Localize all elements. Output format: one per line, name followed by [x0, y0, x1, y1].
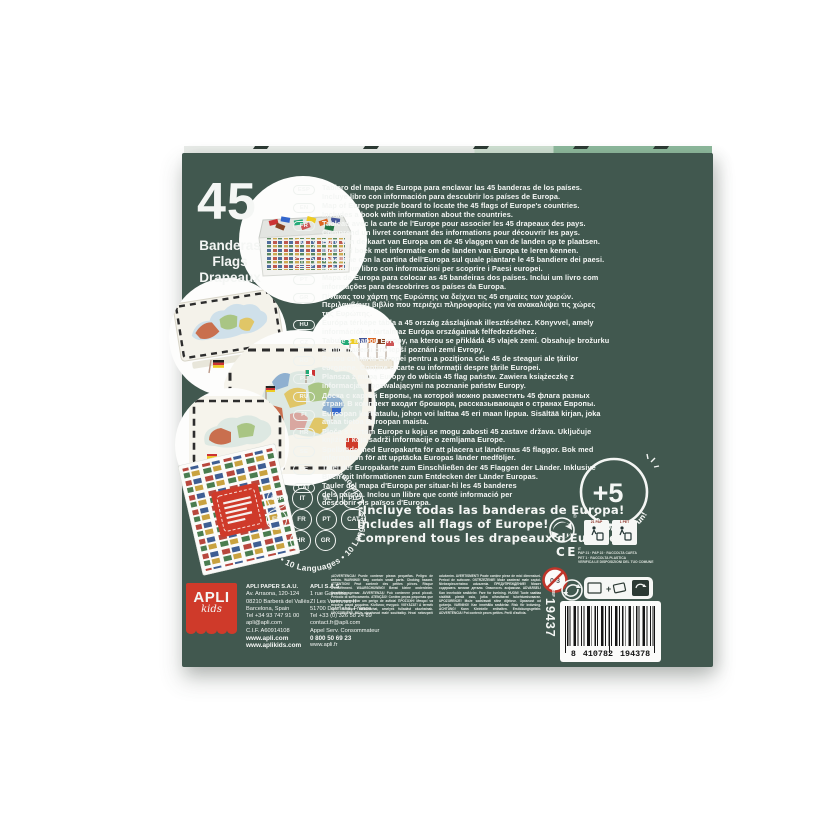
- green-dot-icon: [548, 516, 576, 544]
- description-line: стран. В комплект входит брошюра, расска…: [322, 400, 709, 409]
- sparkle-icon: [647, 454, 659, 467]
- description-row: ITTabellone con la cartina dell'Europa s…: [291, 256, 709, 273]
- recycle-label-paper: 21 PAP: [584, 520, 609, 545]
- count-label-en: Flags: [184, 254, 276, 270]
- svg-text:+: +: [606, 584, 611, 594]
- ref-value: 19437: [543, 598, 557, 638]
- count-label-fr: Drapeaux: [184, 270, 276, 286]
- badge-age-text: +5: [593, 478, 624, 508]
- description-text: Európa térképe tábla a 45 ország zászlaj…: [322, 319, 709, 336]
- description-row: GRΠίνακας του χάρτη της Ευρώπης να δείχν…: [291, 293, 709, 319]
- chip-hr: HR: [290, 530, 311, 551]
- description-line: europene. Conține o carte cu informații …: [322, 364, 709, 373]
- lang-pill: DE: [293, 464, 314, 474]
- lang-pill: SE: [293, 446, 314, 456]
- address-spain: APLI PAPER S.A.U. Av. Arraona, 120-124 0…: [246, 584, 309, 650]
- lang-pill: EN: [293, 203, 314, 213]
- disposal-info: IT PAP 21 · PAP 22 · RACCOLTA CARTA PET …: [578, 547, 664, 564]
- description-row: ROPanou cu harta Europei pentru a poziți…: [291, 355, 709, 372]
- lang-pill: GR: [293, 293, 314, 303]
- description-text: Tabule s mapou Evropy, na kterou se přik…: [322, 337, 709, 354]
- disposal-line: VERIFICA LE DISPOSIZIONI DEL TUO COMUNE: [578, 560, 664, 564]
- chip-fr: FR: [291, 509, 312, 530]
- chip-gr: GR: [315, 530, 336, 551]
- barcode: 8 410782 194378: [560, 601, 661, 662]
- description-line: Περιλαμβάνει βιβλίο που περιέχει πληροφο…: [322, 301, 709, 310]
- description-row: PTMapa da Europa para colocar as 45 band…: [291, 274, 709, 291]
- flag-count: 45: [197, 172, 257, 232]
- description-text: Доска с картой Европы, на которой можно …: [322, 392, 709, 409]
- lang-pill: IT: [293, 257, 314, 267]
- ce-mark: CE: [556, 545, 578, 559]
- description-text: Ploča s kartom Europe u koju se mogu zab…: [322, 428, 709, 445]
- description-text: Bord van de kaart van Europa om de 45 vl…: [322, 238, 709, 255]
- description-line: Inclusief boek met informatie om de land…: [322, 247, 709, 256]
- chip-en: EN: [266, 509, 287, 530]
- description-row: FRTableau avec la carte de l'Europe pour…: [291, 220, 709, 237]
- sorting-strip-icons: +: [584, 577, 653, 599]
- description-row: PLPlansza z mapą Europy do wbicia 45 fla…: [291, 373, 709, 390]
- tidy-man-icon: [616, 525, 634, 541]
- barcode-digits: 8 410782 194378: [560, 649, 661, 659]
- registered-mark: ®: [573, 514, 577, 520]
- description-row: NLBord van de kaart van Europa om de 45 …: [291, 238, 709, 255]
- count-label-es: Banderas: [184, 238, 276, 254]
- description-line: Incluye libro con información para descu…: [322, 193, 709, 202]
- description-line: antaa tietoa Euroopan maista.: [322, 418, 709, 427]
- description-line: Include un libro con informazioni per sc…: [322, 265, 709, 274]
- lang-pill: NL: [293, 239, 314, 249]
- ref-number: REF19437: [541, 588, 559, 638]
- description-line: informações para descobrires os países d…: [322, 283, 709, 292]
- description-row: CZTabule s mapou Evropy, na kterou se př…: [291, 337, 709, 354]
- description-line: της Ευρώπης.: [322, 310, 709, 319]
- description-line: knjižicu koja sadrži informacije o zemlj…: [322, 436, 709, 445]
- flag-count-labels: Banderas Flags Drapeaux: [184, 238, 276, 286]
- description-text: Tablero del mapa de Europa para enclavar…: [322, 184, 709, 201]
- description-row: ESPTablero del mapa de Europa para encla…: [291, 184, 709, 201]
- description-text: Plansza z mapą Europy do wbicia 45 flag …: [322, 373, 709, 390]
- barcode-bars: [567, 606, 654, 646]
- apli-kids-logo: APLI kids: [186, 583, 237, 629]
- description-row: HUEurópa térképe tábla a 45 ország zászl…: [291, 319, 709, 336]
- lang-pill: CAT: [293, 483, 314, 493]
- description-text: Map of Europe puzzle board to locate the…: [322, 202, 709, 219]
- description-line: Comprend un livret contenant des informa…: [322, 229, 709, 238]
- description-line: Includes a book with information about t…: [322, 211, 709, 220]
- description-text: Mapa da Europa para colocar as 45 bandei…: [322, 274, 709, 291]
- lang-pill: FR: [293, 221, 314, 231]
- chip-esp: ESP: [267, 488, 288, 509]
- description-line: informacjami pozwalającymi na poznanie p…: [322, 382, 709, 391]
- tidy-man-icon: [588, 525, 606, 541]
- lang-pill: ESP: [293, 185, 314, 195]
- description-text: Euroopan karttataulu, johon voi laittaa …: [322, 410, 709, 427]
- description-text: Tableau avec la carte de l'Europe pour a…: [322, 220, 709, 237]
- description-row: RUДоска с картой Европы, на которой можн…: [291, 392, 709, 409]
- description-line: információkat tartalmaz Európa országain…: [322, 328, 709, 337]
- lang-pill: HU: [293, 320, 314, 330]
- lang-pill: CZ: [293, 338, 314, 348]
- description-text: Panou cu harta Europei pentru a pozițion…: [322, 355, 709, 372]
- description-line: s informacemi pro lepší poznání zemí Evr…: [322, 346, 709, 355]
- address-france: APLI S.A.S 1 rue Garenne ZI Les Varennes…: [310, 584, 379, 650]
- description-text: Tabellone con la cartina dell'Europa sul…: [322, 256, 709, 273]
- lang-pill: FI: [293, 410, 314, 420]
- ref-label: REF: [551, 588, 556, 597]
- lang-pill: PT: [293, 275, 314, 285]
- description-text: Πίνακας του χάρτη της Ευρώπης να δείχνει…: [322, 293, 709, 319]
- lang-pill: PL: [293, 374, 314, 384]
- description-row: HRPloča s kartom Europe u koju se mogu z…: [291, 428, 709, 445]
- chips-row-2: EN FR PT CAT: [266, 509, 366, 530]
- recycle-arrows-icon: [560, 578, 584, 602]
- lang-pill: RU: [293, 392, 314, 402]
- logo-scallop-edge: [186, 626, 237, 634]
- lang-pill: HR: [293, 428, 314, 438]
- description-row: ENMap of Europe puzzle board to locate t…: [291, 202, 709, 219]
- lang-pill: RO: [293, 356, 314, 366]
- product-photo: 10 Idiomas • 10 Languages • 10 Langues •…: [0, 0, 815, 815]
- chip-pt: PT: [316, 509, 337, 530]
- sorting-strip: +: [584, 577, 653, 599]
- chips-row-3: HR GR: [290, 530, 336, 551]
- recycle-label-plastic: 1 PET: [612, 520, 637, 545]
- description-row: FIEuroopan karttataulu, johon voi laitta…: [291, 410, 709, 427]
